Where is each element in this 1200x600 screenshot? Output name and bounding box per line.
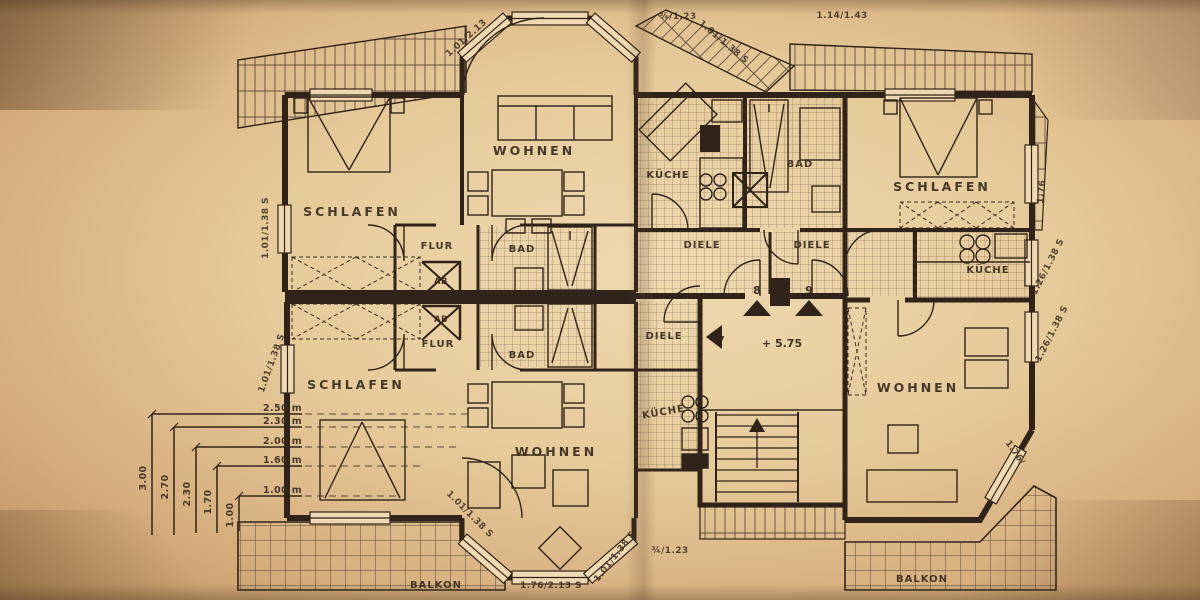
dim-top-mid: ¾/1.23 (659, 12, 696, 22)
dim-bottom-mid: 1.76/2.13 S (520, 581, 582, 591)
room-label-bad-top-left: BAD (509, 244, 536, 255)
door-marker-7-triangle (706, 325, 722, 349)
room-label-schlafen-bottom-left: SCHLAFEN (307, 377, 405, 392)
scale-label-1-00: 1.00 m (263, 485, 302, 496)
room-label-diele-top-right: DIELE (793, 240, 830, 251)
scale-label-2-50: 2.50 m (263, 403, 302, 414)
dim-right-upper: 1.76 (1036, 180, 1048, 205)
room-label-schlafen-top-left: SCHLAFEN (303, 204, 401, 219)
room-label-ab-bottom: AB (434, 315, 448, 325)
room-label-diele-top-left: DIELE (683, 240, 720, 251)
floor-plan-drawing: SCHLAFEN WOHNEN FLUR AB AB BAD KÜCHE DIE… (0, 0, 1200, 600)
room-label-balkon-right: BALKON (896, 574, 948, 585)
room-label-wohnen-right: WOHNEN (877, 380, 959, 395)
scale-label-1-00-v: 1.00 (225, 502, 236, 527)
dim-bottom-bay-right: 1.01/1.38 S (592, 529, 638, 584)
stair-door-number-9: 9 (805, 284, 813, 297)
room-label-bad-bottom-left: BAD (509, 350, 536, 361)
room-label-kueche-top-left: KÜCHE (646, 167, 689, 181)
dim-right-mid-lower: 1.26/1.38 S (1034, 304, 1071, 364)
stair-level-annotation: + 5.75 (762, 337, 802, 350)
scale-label-2-00: 2.00 m (263, 436, 302, 447)
room-label-wohnen-bottom: WOHNEN (515, 444, 597, 459)
staircase (702, 410, 843, 502)
scale-label-2-30-v: 2.30 (182, 481, 193, 506)
stair-door-number-8: 8 (753, 284, 761, 297)
dim-left-upper: 1.01/1.38 S (261, 197, 271, 259)
room-label-balkon-left: BALKON (410, 580, 462, 591)
room-label-wohnen-top: WOHNEN (493, 143, 575, 158)
door-marker-8-triangle (743, 300, 771, 316)
floor-plan-photo: SCHLAFEN WOHNEN FLUR AB AB BAD KÜCHE DIE… (0, 0, 1200, 600)
scale-label-2-70: 2.70 (160, 474, 171, 499)
room-label-flur-top: FLUR (421, 241, 454, 252)
dim-top-right: 1.14/1.43 (816, 11, 867, 21)
scale-label-1-70: 1.70 (203, 489, 214, 514)
room-label-kueche-right: KÜCHE (966, 262, 1009, 276)
scale-label-1-60: 1.60 m (263, 455, 302, 466)
door-marker-9-triangle (795, 300, 823, 316)
roof-height-dashed-lines (305, 414, 470, 496)
room-label-flur-bottom: FLUR (422, 339, 455, 350)
room-label-ab-top: AB (434, 277, 448, 287)
scale-label-3-00: 3.00 (138, 465, 149, 490)
room-label-schlafen-top-right: SCHLAFEN (893, 179, 991, 194)
room-label-diele-bottom: DIELE (645, 331, 682, 342)
room-label-bad-top-right: BAD (787, 159, 814, 170)
scale-label-2-30: 2.30 m (263, 416, 302, 427)
dim-bottom-right-mid: ¾/1.23 (651, 546, 688, 556)
